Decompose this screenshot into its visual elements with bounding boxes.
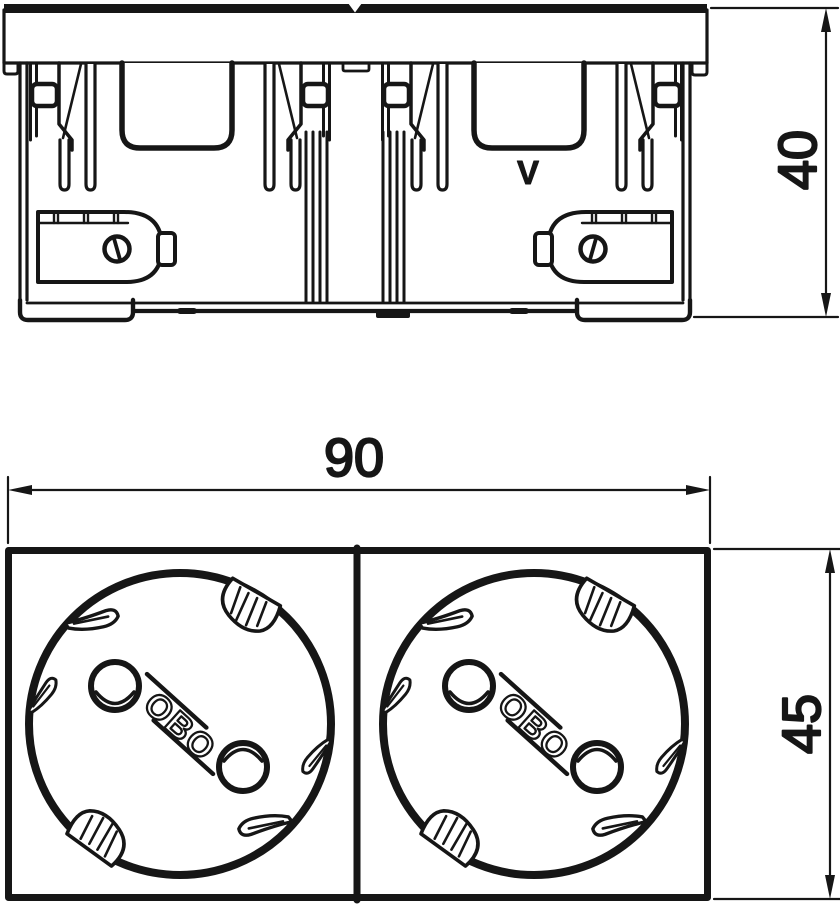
- socket-left-logo: OBO: [136, 685, 223, 769]
- side-elevation-view: V 40: [4, 3, 838, 320]
- center-contact-prongs-right: [383, 132, 404, 302]
- base-center-tab: [376, 309, 410, 318]
- socket-right-logo: OBO: [490, 685, 577, 769]
- orientation-marking-v: V: [517, 154, 539, 191]
- front-view: OBO OBO 90 45: [8, 428, 840, 900]
- socket-module-mechanisms: [31, 63, 682, 302]
- center-contact-prongs-left: [306, 132, 327, 302]
- front-plate: [4, 3, 707, 75]
- dimension-90: 90: [8, 428, 710, 543]
- dimension-45: 45: [714, 549, 840, 899]
- dimension-40: 40: [694, 8, 838, 317]
- technical-drawing-canvas: V 40 OBO OBO 90: [0, 0, 840, 904]
- terminal-block-right: [474, 63, 584, 148]
- dimension-40-label: 40: [768, 130, 828, 190]
- socket-dimension-drawing: V 40 OBO OBO 90: [0, 0, 840, 904]
- dimension-90-label: 90: [324, 428, 384, 488]
- terminal-block-left: [122, 63, 232, 148]
- dimension-45-label: 45: [772, 694, 832, 754]
